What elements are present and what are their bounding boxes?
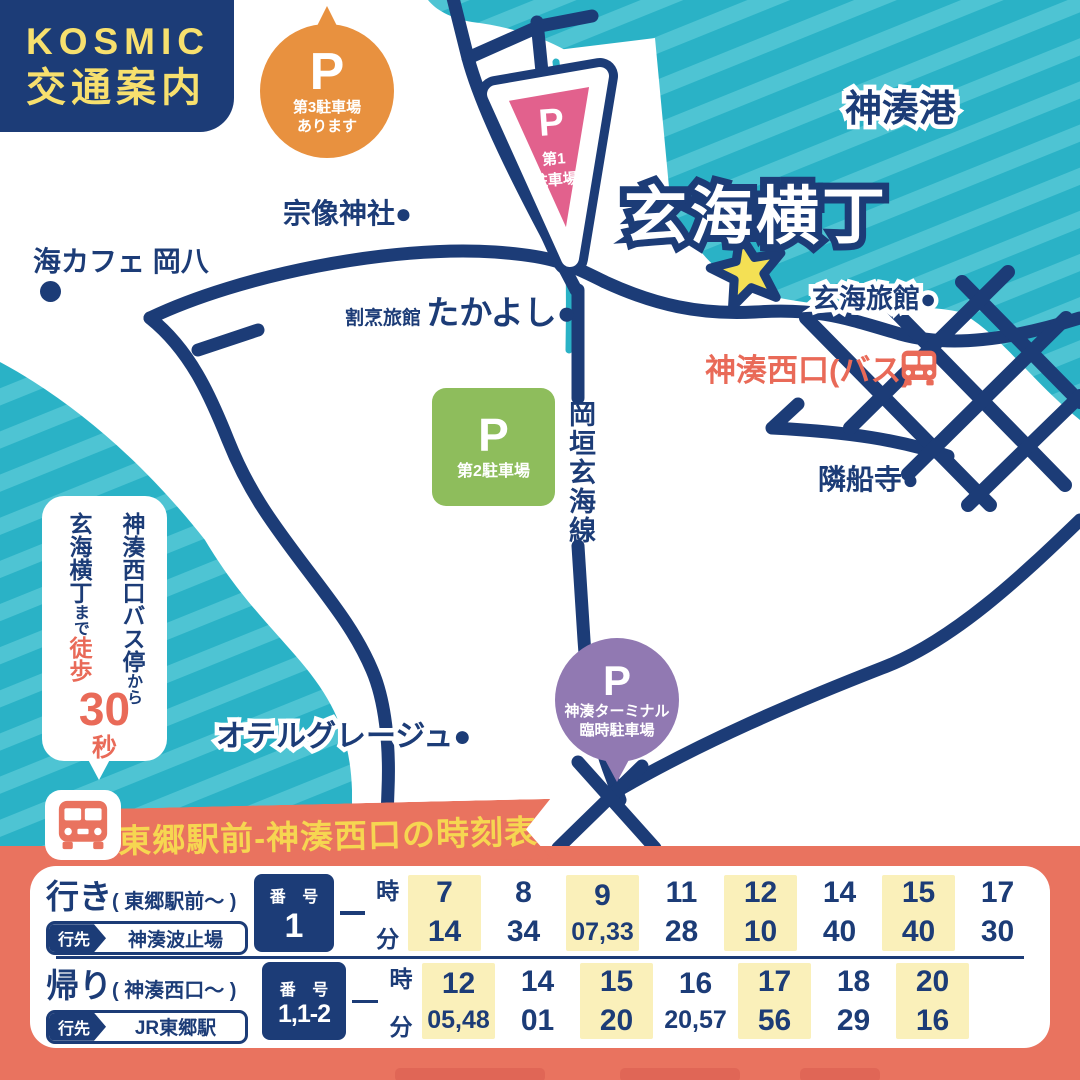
timetable-cell: 11 28 — [645, 875, 718, 951]
road-fork-stub — [198, 330, 258, 350]
bus-icon — [55, 799, 111, 851]
page-title: 交通案内 — [26, 66, 234, 110]
road-terminal-curve — [610, 520, 1080, 795]
timetable-row-outbound: 行き ( 東郷駅前〜 ) 行先 神湊波止場 番 号 1 時 分 7 14 — [46, 873, 1034, 953]
decor-blob — [395, 1068, 545, 1080]
timetable-cell: 7 14 — [408, 875, 481, 951]
bubble-to-text: 玄海横丁まで徒歩 — [62, 512, 96, 682]
ryokan-name: たかよし● — [426, 294, 576, 331]
timetable-panel: 行き ( 東郷駅前〜 ) 行先 神湊波止場 番 号 1 時 分 7 14 — [30, 866, 1050, 1048]
timetable-cell: 12 05,48 — [422, 963, 495, 1039]
timetable-cell: 14 01 — [501, 963, 574, 1039]
destination-badge: 行先 神湊波止場 — [46, 921, 248, 955]
destination-tab: 行先 — [49, 1013, 106, 1041]
hour-minute-labels: 時 分 — [371, 872, 404, 954]
timetable-cell: 17 56 — [738, 963, 811, 1039]
parking1-marker: P 第1 駐車場 — [500, 101, 606, 194]
route-number: 1,1-2 — [278, 1002, 330, 1027]
walk-minutes-unit: 秒 — [42, 728, 167, 764]
timetable-title-ribbon: 東郷駅前-神湊西口の時刻表 — [95, 799, 551, 869]
timetable-cell: 17 30 — [961, 875, 1034, 951]
timetable-cell: 14 40 — [803, 875, 876, 951]
terminal-parking-pointer — [603, 756, 631, 782]
landmark-genkai-ryokan: 玄海旅館● 玄海旅館● — [812, 277, 936, 316]
landmark-ryokan-takayoshi: 割烹旅館 たかよし● — [345, 286, 577, 334]
parking2-symbol: P — [478, 412, 509, 458]
timetable-cell: 8 34 — [487, 875, 560, 951]
ryokan-prefix: 割烹旅館 — [345, 308, 421, 329]
bus-stop-icon — [899, 349, 939, 387]
brand-name: KOSMIC — [26, 22, 234, 63]
route-number: 1 — [285, 909, 304, 943]
destination-title: 玄海横丁 玄海横丁 — [624, 166, 888, 257]
sea-cafe-marker-dot — [40, 281, 61, 302]
timetable-columns: 12 05,48 14 01 15 20 16 20,57 17 56 18 2… — [422, 963, 1034, 1039]
origin-label: ( 神湊西口〜 ) — [112, 974, 236, 1003]
destination-value: JR東郷駅 — [106, 1013, 245, 1041]
decor-blob — [620, 1068, 740, 1080]
timetable-bus-badge — [45, 790, 121, 860]
landmark-shrine: 宗像神社● — [283, 192, 412, 232]
parking3-pointer — [317, 6, 337, 26]
timetable-cell: 15 20 — [580, 963, 653, 1039]
timetable-cell: 16 20,57 — [659, 963, 732, 1039]
parking3-symbol: P — [310, 46, 345, 98]
parking3-marker: P 第3駐車場 あります — [260, 24, 394, 158]
port-label: 神湊港 神湊港 — [845, 78, 956, 132]
bus-stop-label: 神湊西口(バス) — [705, 345, 912, 390]
parking1-symbol: P — [500, 101, 602, 146]
timetable-title: 東郷駅前-神湊西口の時刻表 — [96, 805, 539, 863]
road-name-label: 岡垣玄海線 — [561, 400, 600, 545]
terminal-parking-marker: P 神湊ターミナル 臨時駐車場 — [555, 638, 679, 762]
route-number-box: 番 号 1 — [254, 874, 335, 952]
origin-label: ( 東郷駅前〜 ) — [112, 885, 236, 914]
route-number-box: 番 号 1,1-2 — [262, 962, 346, 1040]
timetable-columns: 7 14 8 34 9 07,33 11 28 12 10 14 40 15 4… — [408, 875, 1034, 951]
direction-label: 行き — [46, 870, 112, 918]
parking2-marker: P 第2駐車場 — [432, 388, 555, 506]
bubble-from-text: 神湊西口バス停から — [115, 512, 149, 705]
timetable-cell: 15 40 — [882, 875, 955, 951]
landmark-sea-cafe: 海カフェ 岡八 — [33, 240, 209, 280]
direction-label: 帰り — [46, 959, 112, 1007]
destination-tab: 行先 — [49, 924, 106, 952]
dash-connector — [352, 1000, 378, 1004]
transit-guide-map: 神湊港 神湊港 玄海横丁 玄海横丁 宗像神社● 海カフェ 岡八 割烹旅館 たかよ… — [0, 0, 1080, 1080]
timetable-cell: 9 07,33 — [566, 875, 639, 951]
timetable-cell: 12 10 — [724, 875, 797, 951]
decor-blob — [800, 1068, 880, 1080]
terminal-parking-symbol: P — [603, 660, 631, 702]
kosmic-header-box: KOSMIC 交通案内 — [0, 0, 234, 132]
timetable-cell: 20 16 — [896, 963, 969, 1039]
dash-connector — [340, 911, 365, 915]
timetable-row-return: 帰り ( 神湊西口〜 ) 行先 JR東郷駅 番 号 1,1-2 時 分 12 0… — [46, 961, 1034, 1041]
landmark-temple: 隣船寺● — [818, 458, 919, 498]
timetable-cell: 18 29 — [817, 963, 890, 1039]
landmark-hotel: オテルグレージュ● オテルグレージュ● — [216, 711, 471, 755]
destination-value: 神湊波止場 — [106, 924, 245, 952]
destination-badge: 行先 JR東郷駅 — [46, 1010, 248, 1044]
hour-minute-labels: 時 分 — [384, 960, 418, 1042]
